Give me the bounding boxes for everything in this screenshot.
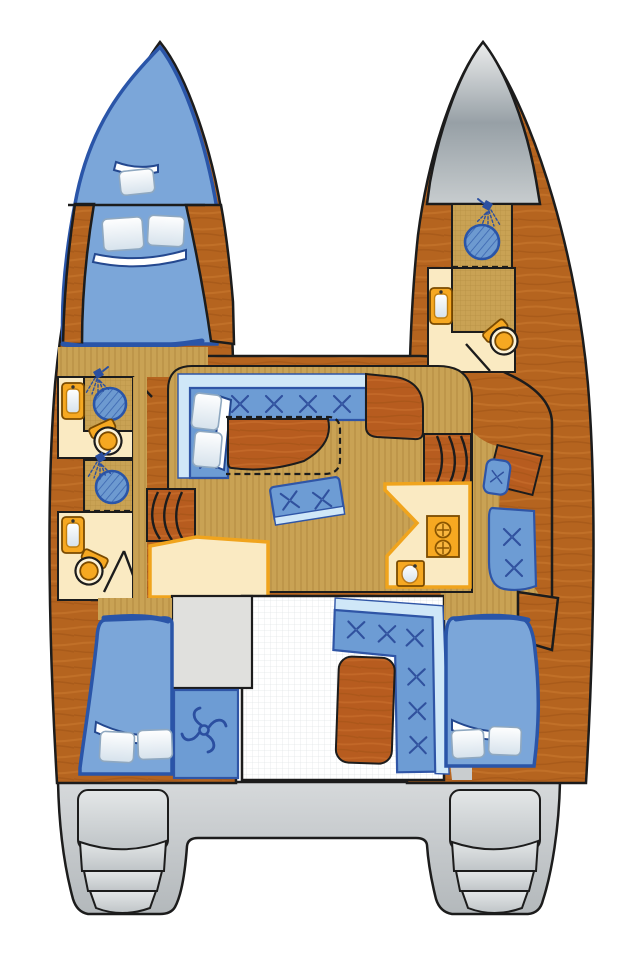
port-corridor-floor xyxy=(133,377,147,600)
washbasin-icon xyxy=(62,517,84,553)
swim-steps-starboard xyxy=(450,790,540,913)
settee-pillow-2 xyxy=(192,431,222,468)
head2-shower-pan xyxy=(96,471,128,503)
galley-sink xyxy=(397,561,424,586)
washbasin-icon xyxy=(62,383,84,419)
head1-shower-pan xyxy=(94,388,126,420)
salon xyxy=(147,366,472,597)
galley-counter-port xyxy=(150,537,268,597)
aft-pillow-1 xyxy=(99,731,135,763)
nav-stool xyxy=(483,458,511,495)
settee-pillow-1 xyxy=(191,393,222,431)
galley-stove xyxy=(427,516,459,557)
deck-plan-svg xyxy=(0,0,618,960)
shower-pan xyxy=(465,225,499,259)
swim-steps-port xyxy=(78,790,168,913)
cockpit-seating xyxy=(329,598,455,774)
cockpit-table xyxy=(335,656,395,764)
steps-to-starboard-hull xyxy=(424,434,471,489)
washbasin-icon xyxy=(430,288,452,324)
aft-pillow-1 xyxy=(451,729,484,759)
steps-to-port-hull xyxy=(147,489,195,541)
aft-pillow-2 xyxy=(489,726,522,755)
engine-hatch xyxy=(172,596,252,688)
fwd-pillow-2 xyxy=(147,215,185,247)
fwd-pillow-1 xyxy=(102,217,144,252)
cockpit xyxy=(172,596,472,780)
nav-bench xyxy=(489,508,536,590)
aft-pillow-2 xyxy=(138,729,173,759)
bow-pillow xyxy=(119,168,155,195)
catamaran-floor-plan xyxy=(0,0,618,960)
